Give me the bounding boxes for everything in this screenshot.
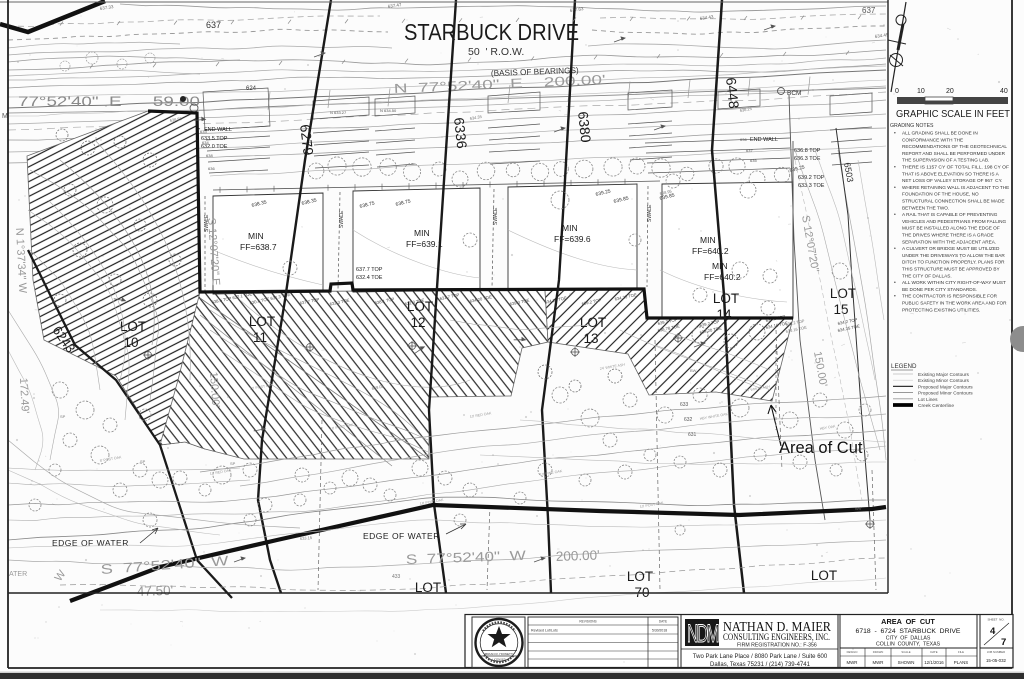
- svg-text:ALL WORK WITHIN CITY RIGHT-OF-: ALL WORK WITHIN CITY RIGHT-OF-WAY MUST: [902, 280, 1006, 285]
- svg-text:MIN: MIN: [712, 261, 728, 271]
- svg-text:14: 14: [716, 307, 732, 322]
- svg-text:BRIAN R. HOWETT: BRIAN R. HOWETT: [485, 652, 513, 656]
- svg-text:FF=639.1: FF=639.1: [406, 239, 443, 249]
- svg-text:638: 638: [206, 153, 213, 158]
- svg-text:MIN: MIN: [700, 235, 716, 245]
- svg-text:REPORT AND SHALL BE PERFORMED: REPORT AND SHALL BE PERFORMED UNDER: [902, 151, 1006, 156]
- svg-text:COLLIN COUNTY, TEXAS: COLLIN COUNTY, TEXAS: [876, 642, 941, 648]
- svg-text:JOB NUMBER: JOB NUMBER: [987, 650, 1005, 654]
- svg-text:Proposed Major Contours: Proposed Major Contours: [918, 384, 973, 390]
- svg-text:6718 - 6724 STARBUCK DRIVE: 6718 - 6724 STARBUCK DRIVE: [856, 628, 961, 635]
- svg-text:WV: WV: [855, 506, 862, 511]
- svg-text:15-05-032: 15-05-032: [986, 658, 1007, 663]
- svg-text:THE SUPERVISION OF A TESTING L: THE SUPERVISION OF A TESTING LAB.: [902, 158, 989, 163]
- svg-text:10: 10: [917, 88, 925, 95]
- svg-text:THIS STRUCTURE MUST BE APPROVE: THIS STRUCTURE MUST BE APPROVED BY: [902, 267, 1000, 272]
- svg-text:6448: 6448: [723, 77, 742, 110]
- svg-text:637: 637: [746, 148, 753, 153]
- svg-text:LOT: LOT: [713, 291, 739, 306]
- svg-text:200.00': 200.00': [556, 547, 600, 564]
- svg-text:FIRM REGISTRATION NO.: F-356: FIRM REGISTRATION NO.: F-356: [737, 643, 817, 649]
- svg-text:47.50': 47.50': [137, 583, 174, 599]
- svg-text:636: 636: [740, 137, 747, 142]
- svg-text:A CULVERT OR BRIDGE MUST BE UT: A CULVERT OR BRIDGE MUST BE UTILIZED: [902, 246, 1000, 251]
- svg-text:13: 13: [583, 331, 598, 346]
- svg-text:Existing Minor Contours: Existing Minor Contours: [918, 378, 970, 384]
- svg-text:SHOWN: SHOWN: [898, 660, 915, 665]
- svg-text:END WALL: END WALL: [204, 127, 232, 133]
- svg-text:BE DONE PER CITY STANDARDS.: BE DONE PER CITY STANDARDS.: [902, 287, 977, 292]
- svg-text:ALL GRADING SHALL BE DONE IN: ALL GRADING SHALL BE DONE IN: [902, 131, 978, 136]
- svg-text:637: 637: [862, 6, 876, 15]
- svg-text:STARBUCK DRIVE: STARBUCK DRIVE: [404, 19, 579, 45]
- svg-text:PROTECTING EXISTING UTILITIES.: PROTECTING EXISTING UTILITIES.: [902, 307, 980, 312]
- svg-text:633: 633: [680, 402, 689, 408]
- svg-text:DATE: DATE: [930, 650, 937, 654]
- svg-text:632.4 TOE: 632.4 TOE: [356, 275, 383, 281]
- svg-text:LEGEND: LEGEND: [891, 363, 917, 370]
- svg-text:636: 636: [208, 166, 215, 171]
- svg-text:Area of Cut: Area of Cut: [779, 439, 863, 457]
- svg-text:624: 624: [246, 86, 257, 92]
- svg-text:NET LOSS OF VALLEY STORAGE OF: NET LOSS OF VALLEY STORAGE OF 967 CY.: [902, 178, 1003, 183]
- svg-text:77°52'40" E 59.00: 77°52'40" E 59.00: [18, 94, 200, 109]
- svg-text:MUST BE INSTALLED ALONG THE ED: MUST BE INSTALLED ALONG THE EDGE OF: [902, 226, 1000, 231]
- svg-text:150.00': 150.00': [207, 371, 221, 408]
- svg-text:MIN: MIN: [562, 223, 578, 233]
- svg-text:N 634.50: N 634.50: [380, 108, 397, 113]
- svg-text:SP: SP: [60, 414, 66, 419]
- svg-text:6380: 6380: [575, 111, 594, 144]
- svg-text:REVISIONS: REVISIONS: [579, 620, 596, 624]
- svg-text:LOT: LOT: [407, 299, 433, 314]
- svg-text:LOT: LOT: [120, 319, 146, 334]
- svg-text:END WALL: END WALL: [750, 137, 778, 143]
- svg-text:PLANS: PLANS: [954, 660, 968, 665]
- svg-text:SHEET NO.: SHEET NO.: [988, 618, 1005, 622]
- svg-text:172.49': 172.49': [17, 378, 31, 414]
- svg-text:SCALE: SCALE: [901, 650, 910, 654]
- svg-text:SP: SP: [230, 461, 236, 466]
- svg-text:DITCH TO FUNCTION PROPERLY. PL: DITCH TO FUNCTION PROPERLY. PLANS FOR: [902, 260, 1005, 265]
- svg-text:BW: BW: [690, 368, 697, 373]
- svg-text:•: •: [894, 165, 896, 171]
- svg-text:Dallas, Texas 75231 / (214) 73: Dallas, Texas 75231 / (214) 739-4741: [710, 662, 811, 668]
- svg-text:Two Park Lane Place / 8080 Par: Two Park Lane Place / 8080 Park Lane / S…: [693, 654, 828, 660]
- svg-text:12/1/2016: 12/1/2016: [924, 660, 944, 665]
- svg-text:CONFORMANCE WITH THE: CONFORMANCE WITH THE: [902, 137, 963, 142]
- svg-text:FOUNDATION OF THE HOUSE, NO: FOUNDATION OF THE HOUSE, NO: [902, 192, 979, 197]
- svg-text:LOT: LOT: [580, 315, 606, 330]
- svg-text:0: 0: [895, 88, 899, 95]
- svg-text:FF=639.6: FF=639.6: [554, 234, 591, 244]
- svg-text:50 ' R.O.W.: 50 ' R.O.W.: [468, 46, 524, 58]
- svg-text:637: 637: [206, 20, 221, 30]
- svg-text:DRAWN: DRAWN: [873, 650, 883, 654]
- svg-text:633.3 TOE: 633.3 TOE: [798, 183, 825, 189]
- svg-text:•: •: [894, 246, 896, 252]
- svg-text:•: •: [894, 185, 896, 191]
- svg-text:DATE: DATE: [659, 620, 667, 624]
- svg-text:MWR: MWR: [847, 660, 858, 665]
- svg-text:THE CITY OF DALLAS.: THE CITY OF DALLAS.: [902, 273, 952, 278]
- svg-text:FF=638.7: FF=638.7: [240, 242, 277, 252]
- svg-text:LOT: LOT: [249, 314, 275, 329]
- svg-text:ATER: ATER: [9, 571, 27, 578]
- svg-text:Proposed Minor Contours: Proposed Minor Contours: [918, 391, 973, 397]
- svg-text:THE CONTRACTOR IS RESPONSIBLE: THE CONTRACTOR IS RESPONSIBLE FOR: [902, 294, 998, 299]
- svg-text:5/30/2018: 5/30/2018: [652, 629, 667, 633]
- svg-text:636.8 TOP: 636.8 TOP: [794, 148, 821, 154]
- svg-text:PUBLIC SAFETY IN THE WORK AREA: PUBLIC SAFETY IN THE WORK AREA AND FOR: [902, 301, 1007, 306]
- svg-text:BETWEEN THE TWO.: BETWEEN THE TWO.: [902, 205, 949, 210]
- svg-text:11: 11: [253, 330, 267, 345]
- svg-text:MWR: MWR: [873, 660, 884, 665]
- svg-text:WHERE RETAINING WALL IS ADJACE: WHERE RETAINING WALL IS ADJACENT TO THE: [902, 185, 1009, 190]
- svg-text:Existing Major Contours: Existing Major Contours: [918, 372, 970, 378]
- svg-text:SWALE: SWALE: [339, 210, 345, 228]
- svg-text:LOT: LOT: [627, 569, 653, 584]
- svg-text:7: 7: [1001, 637, 1006, 648]
- svg-text:10: 10: [123, 335, 138, 350]
- svg-text:SP: SP: [140, 459, 146, 464]
- svg-text:DESIGN: DESIGN: [847, 650, 858, 654]
- svg-text:LOT: LOT: [830, 286, 856, 301]
- svg-text:•: •: [894, 131, 896, 137]
- svg-text:433: 433: [392, 574, 401, 580]
- svg-text:632.0 TOE: 632.0 TOE: [201, 144, 228, 150]
- svg-text:THERE IS 1157 CY OF TOTAL FILL: THERE IS 1157 CY OF TOTAL FILL. 198 CY O…: [902, 165, 1009, 170]
- svg-text:MIN: MIN: [414, 228, 430, 238]
- svg-text:UNDER THE DRIVEWAYS TO ALLOW T: UNDER THE DRIVEWAYS TO ALLOW THE BAR: [902, 253, 1005, 258]
- svg-text:VEHICLES AND PEDESTRIANS FROM: VEHICLES AND PEDESTRIANS FROM FALLING: [902, 219, 1007, 224]
- svg-text:GRAPHIC SCALE IN FEET: GRAPHIC SCALE IN FEET: [896, 109, 1010, 120]
- svg-text:Creek Centerline: Creek Centerline: [918, 403, 954, 409]
- svg-text:639.2 TOP: 639.2 TOP: [798, 175, 825, 181]
- svg-text:LOT: LOT: [811, 568, 837, 583]
- svg-text:6336: 6336: [451, 117, 470, 150]
- svg-text:•: •: [894, 212, 896, 218]
- svg-text:A RAIL THAT IS CAPABLE OF PREV: A RAIL THAT IS CAPABLE OF PREVENTING: [902, 212, 998, 217]
- svg-text:633.5 TOP: 633.5 TOP: [201, 136, 228, 142]
- svg-text:THAT IS ABOVE ELEVATION SO THE: THAT IS ABOVE ELEVATION SO THERE IS A: [902, 171, 1000, 176]
- svg-text:635: 635: [750, 158, 757, 163]
- svg-text:NDM: NDM: [687, 620, 718, 648]
- svg-text:FILE: FILE: [958, 650, 964, 654]
- svg-text:40: 40: [1000, 88, 1008, 95]
- svg-text:SEPARATION WITH THE ADJACENT A: SEPARATION WITH THE ADJACENT AREA.: [902, 239, 996, 244]
- svg-text:632: 632: [684, 417, 693, 423]
- svg-text:SWALE: SWALE: [647, 204, 653, 222]
- svg-text:Lot Lines: Lot Lines: [918, 397, 938, 403]
- svg-text:20: 20: [946, 88, 954, 95]
- svg-text:•: •: [894, 294, 896, 300]
- svg-text:12: 12: [410, 315, 425, 330]
- svg-text:FF=640.2: FF=640.2: [692, 246, 729, 256]
- svg-text:THE DRIVES WHERE THERE IS A GR: THE DRIVES WHERE THERE IS A GRADE: [902, 233, 994, 238]
- svg-text:637.7 TOP: 637.7 TOP: [356, 267, 383, 273]
- svg-text:•: •: [894, 280, 896, 286]
- svg-text:Revised Lot/Lots: Revised Lot/Lots: [531, 629, 558, 633]
- svg-text:SWALE: SWALE: [493, 207, 499, 225]
- svg-text:GRADING NOTES: GRADING NOTES: [890, 123, 934, 129]
- svg-text:N 633.27: N 633.27: [330, 110, 347, 115]
- svg-text:MIN: MIN: [248, 231, 264, 241]
- svg-text:4: 4: [990, 626, 996, 637]
- svg-text:STRUCTURAL CONNECTION SHALL BE: STRUCTURAL CONNECTION SHALL BE MADE: [902, 199, 1005, 204]
- svg-text:AREA OF CUT: AREA OF CUT: [881, 617, 935, 626]
- svg-text:RECOMMENDATIONS OF THE GEOTECH: RECOMMENDATIONS OF THE GEOTECHNICAL: [902, 144, 1007, 149]
- svg-text:CONSULTING ENGINEERS, INC.: CONSULTING ENGINEERS, INC.: [723, 632, 830, 642]
